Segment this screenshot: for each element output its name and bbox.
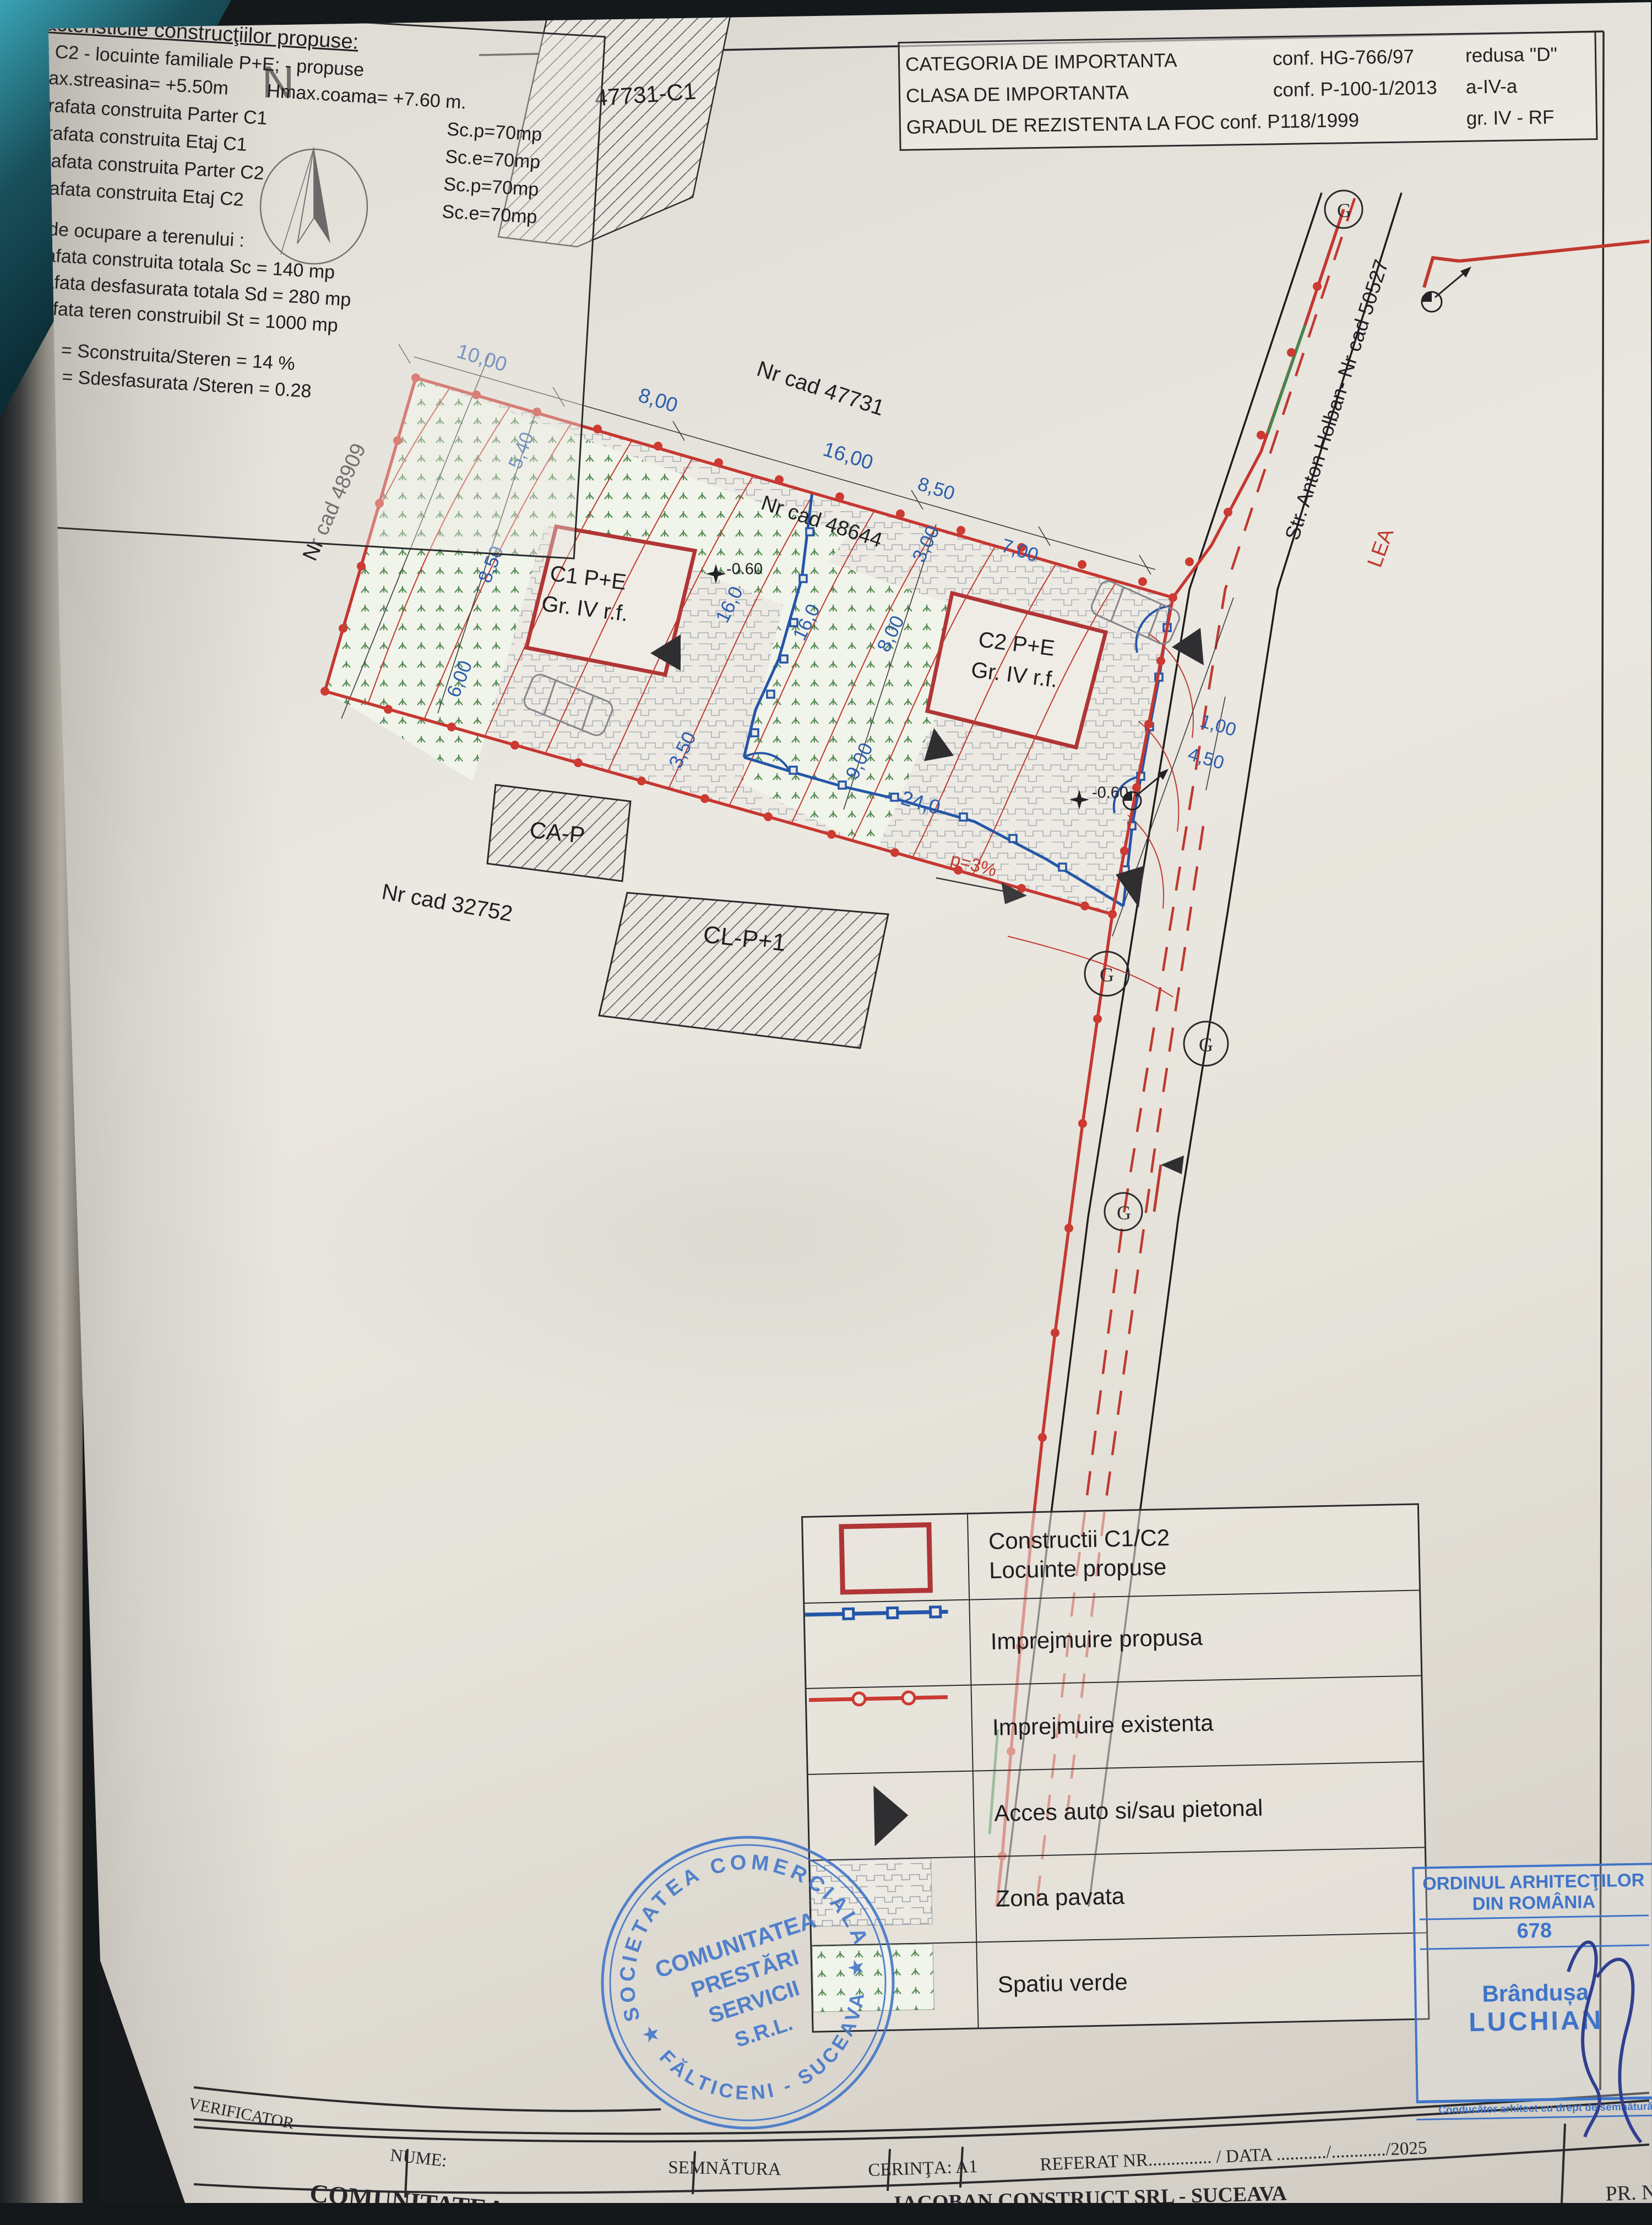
- green-space-symbol: [812, 1943, 979, 2031]
- data-label: / DATA: [1216, 2145, 1272, 2167]
- power-pole-icon: [1424, 241, 1649, 287]
- photo-background: G G G G: [0, 0, 1652, 2203]
- importance-ref-1: conf. HG-766/97: [1273, 45, 1466, 70]
- legend-row-imprejmuire-existenta: Imprejmuire existenta: [807, 1676, 1423, 1775]
- access-arrow-symbol: [808, 1772, 975, 1860]
- gas-letter-3: G: [1199, 1034, 1213, 1056]
- referat-dots: ..............: [1148, 2147, 1212, 2170]
- flag-pole-icon: [1154, 1155, 1184, 1212]
- supr-parter-c1-value: Sc.p=70mp: [446, 119, 588, 149]
- legend-label-imprejmuire-existenta: Imprejmuire existenta: [992, 1704, 1422, 1742]
- legend-row-spatiu-verde: Spatiu verde: [812, 1934, 1428, 2031]
- legend-row-acces: Acces auto si/sau pietonal: [808, 1762, 1425, 1860]
- data-year: 2025: [1390, 2138, 1428, 2159]
- supr-parter-c2-value: Sc.p=70mp: [443, 173, 584, 203]
- legend-label-acces: Acces auto si/sau pietonal: [994, 1790, 1424, 1828]
- importance-value-1: redusa "D": [1465, 43, 1590, 67]
- importance-row-2: CLASA DE IMPORTANTA conf. P-100-1/2013 a…: [906, 74, 1590, 107]
- elevation-label-1: -0.60: [726, 561, 763, 579]
- proposed-fence-symbol: [805, 1600, 971, 1688]
- gas-letter-2: G: [1100, 964, 1114, 986]
- elevation-label-2: -0.60: [1092, 784, 1128, 802]
- gas-letter-4: G: [1117, 1202, 1131, 1224]
- drawing-sheet: G G G G: [0, 0, 1652, 2203]
- oar-number: 678: [1415, 1917, 1652, 1945]
- oar-line2: DIN ROMÂNIA: [1415, 1890, 1652, 1915]
- importance-label-1: CATEGORIA DE IMPORTANTA: [905, 48, 1273, 75]
- importance-table: CATEGORIA DE IMPORTANTA conf. HG-766/97 …: [898, 31, 1598, 151]
- paved-zone-symbol: [810, 1857, 977, 1945]
- data-dots: .........../............/: [1276, 2140, 1391, 2164]
- cerinta-label: CERINŢA: A1: [868, 2157, 978, 2181]
- importance-value-2: a-IV-a: [1466, 74, 1590, 99]
- oar-name-first: Brândușa: [1416, 1978, 1652, 2009]
- oar-stamp: ORDINUL ARHITECŢILOR DIN ROMÂNIA 678 Brâ…: [1412, 1863, 1652, 2103]
- semnatura-label: SEMNĂTURA: [668, 2158, 781, 2180]
- supr-etaj-c1-value: Sc.e=70mp: [444, 146, 586, 176]
- referat-label: REFERAT NR: [1040, 2150, 1149, 2175]
- importance-ref-2: conf. P-100-1/2013: [1273, 77, 1466, 101]
- importance-label-2: CLASA DE IMPORTANTA: [906, 79, 1274, 107]
- gas-letter-1: G: [1337, 199, 1351, 221]
- legend-label-imprejmuire-propusa: Imprejmuire propusa: [990, 1619, 1420, 1657]
- oar-name-last: LUCHIAN: [1417, 2004, 1652, 2039]
- legend-label-spatiu-verde: Spatiu verde: [997, 1961, 1427, 1999]
- importance-value-3: gr. IV - RF: [1466, 106, 1591, 130]
- importance-row-3: GRADUL DE REZISTENTA LA FOC conf. P118/1…: [906, 106, 1590, 139]
- oar-divider-2: [1420, 1944, 1649, 1950]
- building-ca-p-label: CA-P: [529, 817, 586, 849]
- pr-nr-label: PR. N: [1605, 2180, 1652, 2206]
- legend-row-zona-pavata: Zona pavata: [810, 1848, 1426, 1946]
- existing-fence-symbol: [807, 1686, 974, 1774]
- legend-row-constructii: Constructii C1/C2 Locuinte propuse: [803, 1505, 1419, 1604]
- building-cl-p1: [599, 893, 888, 1048]
- legend-table: Constructii C1/C2 Locuinte propuse Impre…: [801, 1504, 1430, 2033]
- importance-row-1: CATEGORIA DE IMPORTANTA conf. HG-766/97 …: [905, 43, 1589, 76]
- legend-row-imprejmuire-propusa: Imprejmuire propusa: [805, 1591, 1421, 1689]
- oar-footer-text: Conducător arhitect cu drept de semnătur…: [1438, 2101, 1652, 2117]
- characteristics-block: Caracteristicile construcţiilor propuse:…: [0, 0, 606, 560]
- legend-label-zona-pavata: Zona pavata: [996, 1876, 1426, 1914]
- oar-line1: ORDINUL ARHITECŢILOR: [1415, 1869, 1652, 1895]
- proposed-building-symbol: [803, 1515, 970, 1603]
- importance-label-3: GRADUL DE REZISTENTA LA FOC conf. P118/1…: [906, 108, 1467, 139]
